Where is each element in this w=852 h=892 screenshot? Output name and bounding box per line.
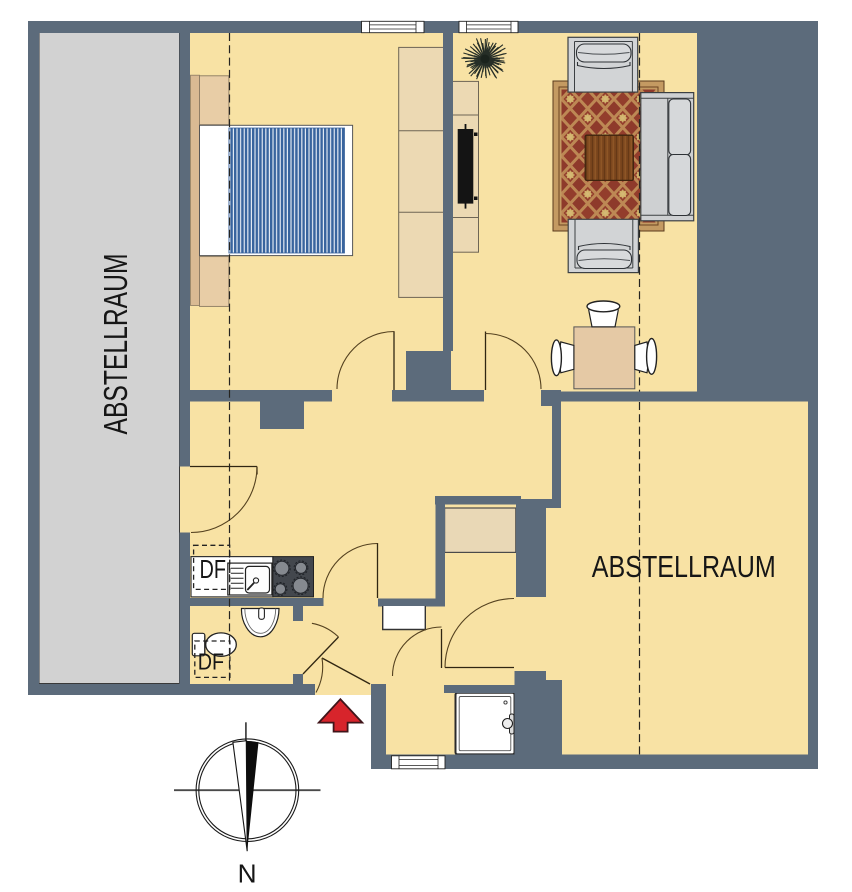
svg-text:ABSTELLRAUM: ABSTELLRAUM xyxy=(592,549,776,584)
svg-text:DF: DF xyxy=(198,648,224,674)
svg-text:ABSTELLRAUM: ABSTELLRAUM xyxy=(97,254,134,435)
svg-text:DF: DF xyxy=(200,554,227,584)
svg-text:N: N xyxy=(238,860,257,888)
